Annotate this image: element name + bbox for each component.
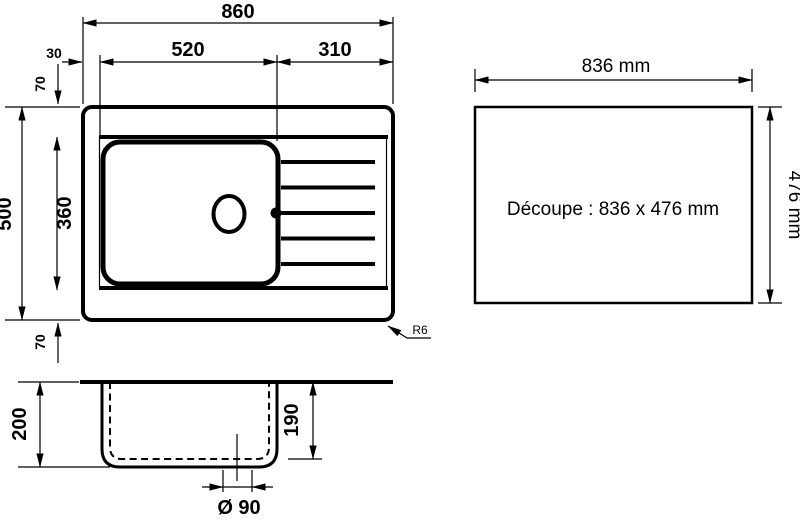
- dim-label-310: 310: [318, 39, 351, 61]
- dimension-bowl-zone-width: 520: [100, 39, 277, 62]
- dimension-overall-width: 860: [83, 1, 393, 23]
- dim-label-836mm: 836 mm: [582, 56, 651, 77]
- dimension-cutout-width: 836 mm: [475, 56, 752, 92]
- cutout-view: Découpe : 836 x 476 mm 836 mm 476 mm: [475, 56, 800, 303]
- dimension-edge-offset-top: 70: [32, 64, 58, 104]
- drain-hole: [214, 196, 245, 232]
- cutout-label: Découpe : 836 x 476 mm: [507, 199, 719, 220]
- sink-technical-drawing: 860 520 310 30 70 500 360: [0, 0, 800, 526]
- dim-label-360: 360: [54, 196, 76, 229]
- dimension-edge-offset-left: 30: [46, 45, 82, 62]
- dimension-cutout-height: 476 mm: [758, 107, 800, 303]
- dimension-bowl-inner-depth: 190: [281, 382, 313, 459]
- dim-label-drain-diameter: Ø 90: [217, 497, 260, 519]
- dim-label-30: 30: [46, 45, 62, 61]
- dim-label-70-bottom: 70: [32, 334, 48, 350]
- dim-label-r6: R6: [412, 323, 428, 337]
- dim-label-70-top: 70: [32, 76, 48, 92]
- dimension-bowl-depth: 360: [54, 137, 76, 290]
- dimension-overall-depth: 500: [0, 107, 22, 320]
- dimension-drainer-zone-width: 310: [277, 39, 393, 62]
- bowl-section-outline: [102, 382, 277, 467]
- dim-label-200: 200: [9, 407, 31, 440]
- dimension-edge-offset-bottom: 70: [32, 323, 58, 363]
- plan-view: 860 520 310 30 70 500 360: [0, 1, 431, 363]
- dimension-total-depth: 200: [9, 382, 40, 467]
- bowl-outline: [103, 142, 278, 284]
- dim-label-476mm: 476 mm: [784, 171, 800, 240]
- dim-label-520: 520: [171, 39, 204, 61]
- dim-label-190: 190: [281, 403, 303, 436]
- dim-label-860: 860: [221, 1, 254, 23]
- drawing-canvas: 860 520 310 30 70 500 360: [0, 0, 800, 526]
- corner-radius-callout: R6: [388, 323, 431, 338]
- overflow-hole: [271, 208, 282, 219]
- section-view: 200 190 Ø 90: [9, 382, 393, 519]
- bowl-section-inner-dashed: [110, 382, 269, 459]
- dim-label-500: 500: [0, 197, 16, 230]
